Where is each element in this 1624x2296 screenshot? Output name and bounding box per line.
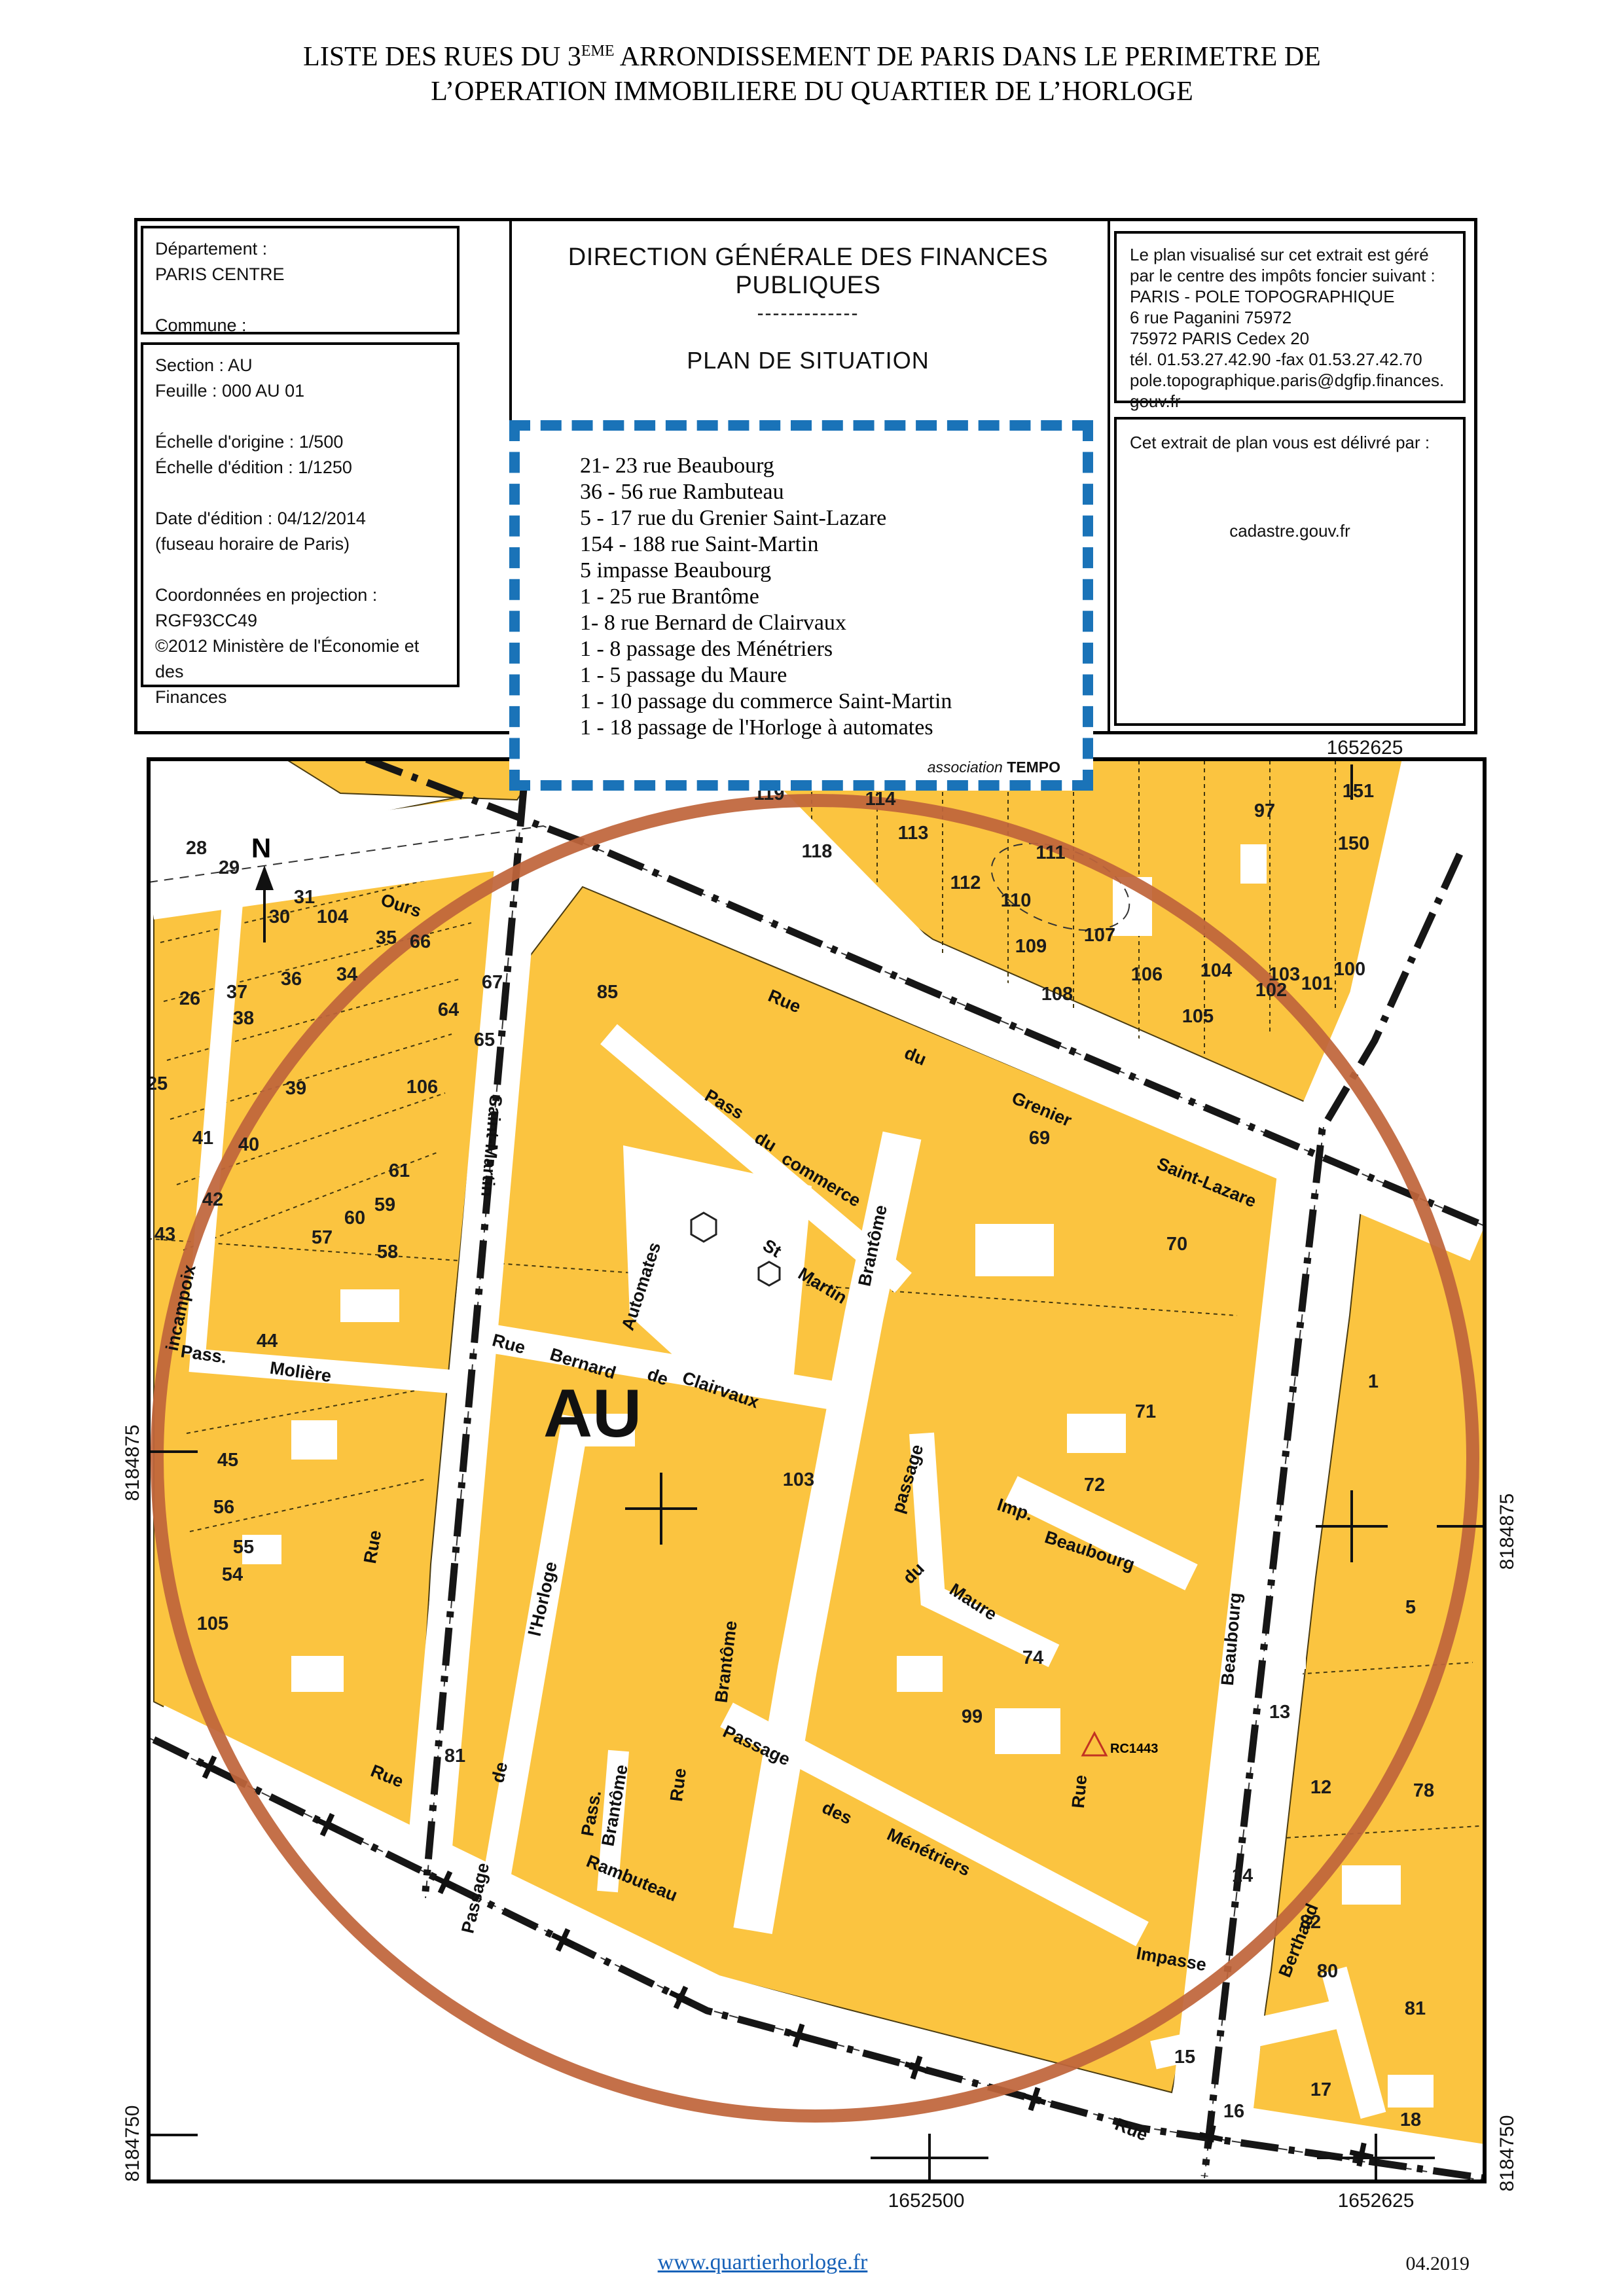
street-item: 154 - 188 rue Saint-Martin <box>580 531 1083 558</box>
sheet-info-box: Section : AU Feuille : 000 AU 01 Échelle… <box>141 342 460 687</box>
parcel-number: 26 <box>179 988 200 1009</box>
grid-coordinate: 8184875 <box>124 1425 143 1501</box>
page-title-line2: L’OPERATION IMMOBILIERE DU QUARTIER DE L… <box>0 75 1624 109</box>
footer-date: 04.2019 <box>1406 2253 1470 2275</box>
parcel-number: 15 <box>1174 2047 1195 2068</box>
grid-coordinate: 1652625 <box>1338 2190 1415 2212</box>
tax-office-name: PARIS - POLE TOPOGRAPHIQUE <box>1130 286 1450 307</box>
parcel-number: 108 <box>1041 984 1073 1005</box>
section-line: Section : AU <box>155 353 445 378</box>
street-list: 21- 23 rue Beaubourg 36 - 56 rue Rambute… <box>520 431 1083 741</box>
parcel-number: 40 <box>238 1134 259 1155</box>
parcel-number: 103 <box>783 1469 814 1490</box>
parcel-number: 64 <box>438 999 459 1020</box>
grid-coordinate: 8184875 <box>1496 1494 1518 1570</box>
grid-coordinate: 1652500 <box>888 2190 965 2212</box>
parcel-number: 105 <box>197 1613 228 1634</box>
parcel-number: 45 <box>217 1450 238 1471</box>
page-title: LISTE DES RUES DU 3EME ARRONDISSEMENT DE… <box>0 34 1624 109</box>
parcel-number: 114 <box>865 789 896 810</box>
header-divider-right <box>1108 218 1110 734</box>
delivery-box: Cet extrait de plan vous est délivré par… <box>1114 417 1466 726</box>
parcel-number: 109 <box>1015 936 1047 957</box>
parcel-number: 54 <box>222 1564 243 1585</box>
parcel-number: 38 <box>233 1008 254 1029</box>
tax-office-box: Le plan visualisé sur cet extrait est gé… <box>1114 231 1466 403</box>
parcel-number: 97 <box>1254 800 1275 821</box>
departement-value: PARIS CENTRE <box>155 262 445 287</box>
feuille-line: Feuille : 000 AU 01 <box>155 378 445 404</box>
parcel-number: 58 <box>377 1242 398 1263</box>
footer: www.quartierhorloge.fr <box>0 2250 1525 2275</box>
parcel-number: 29 <box>219 857 240 878</box>
cadastre-plan-page: { "title": { "line1_pre": "LISTE DES RUE… <box>0 0 1624 2296</box>
parcel-number: 85 <box>597 982 618 1003</box>
parcel-number: 107 <box>1084 925 1115 946</box>
grid-coordinate: 1652625 <box>1327 737 1403 759</box>
date-edition-line: Date d'édition : 04/12/2014 <box>155 506 445 531</box>
projection-line: Coordonnées en projection : RGF93CC49 <box>155 583 445 634</box>
grid-coordinate: 8184750 <box>1496 2115 1518 2192</box>
parcel-number: 16 <box>1223 2101 1244 2122</box>
parcel-number: 34 <box>336 964 357 985</box>
parcel-number: 150 <box>1338 833 1369 854</box>
parcel-number: 106 <box>406 1077 438 1098</box>
street-list-box: 21- 23 rue Beaubourg 36 - 56 rue Rambute… <box>509 420 1093 791</box>
copyright-line2: Finances <box>155 685 445 710</box>
parcel-number: 30 <box>269 906 290 927</box>
parcel-number: 28 <box>186 838 207 859</box>
tax-office-address1: 6 rue Paganini 75972 <box>1130 307 1450 328</box>
parcel-number: 43 <box>154 1224 175 1245</box>
parcel-number: 67 <box>482 972 503 993</box>
parcel-number: 151 <box>1343 781 1374 802</box>
parcel-number: 37 <box>226 982 247 1003</box>
parcel-number: 41 <box>192 1128 213 1149</box>
parcel-number: 12 <box>1310 1777 1331 1798</box>
footer-link[interactable]: www.quartierhorloge.fr <box>658 2250 868 2274</box>
parcel-number: 69 <box>1029 1128 1050 1149</box>
parcel-number: 66 <box>410 931 431 952</box>
echelle-edition-line: Échelle d'édition : 1/1250 <box>155 455 445 480</box>
parcel-number: 31 <box>294 887 315 908</box>
street-item: 5 - 17 rue du Grenier Saint-Lazare <box>580 505 1083 531</box>
parcel-number: 110 <box>1001 890 1032 911</box>
tax-office-line1: Le plan visualisé sur cet extrait est gé… <box>1130 244 1450 265</box>
tax-office-email2: gouv.fr <box>1130 391 1450 412</box>
tax-office-address2: 75972 PARIS Cedex 20 <box>1130 328 1450 349</box>
parcel-number: 57 <box>312 1227 333 1248</box>
parcel-number: 56 <box>213 1497 234 1518</box>
street-item: 21- 23 rue Beaubourg <box>580 453 1083 479</box>
street-item: 1 - 18 passage de l'Horloge à automates <box>580 715 1083 741</box>
parcel-number: 103 <box>1269 964 1300 985</box>
copyright-line: ©2012 Ministère de l'Économie et des <box>155 634 445 685</box>
doc-type-title: PLAN DE SITUATION <box>512 347 1104 374</box>
rc-label: RC1443 <box>1110 1742 1158 1756</box>
parcel-number: 81 <box>1405 1998 1426 2019</box>
parcel-number: 65 <box>474 1030 495 1050</box>
org-divider: ------------- <box>512 302 1104 325</box>
parcel-number: 74 <box>1022 1647 1043 1668</box>
grid-coordinate: 8184750 <box>124 2106 143 2182</box>
title-superscript: EME <box>581 43 615 60</box>
echelle-origine-line: Échelle d'origine : 1/500 <box>155 429 445 455</box>
parcel-number: 1 <box>1368 1371 1379 1392</box>
tax-office-email1: pole.topographique.paris@dgfip.finances. <box>1130 370 1450 391</box>
departement-box: Département : PARIS CENTRE Commune : PAR… <box>141 226 460 334</box>
parcel-number: 59 <box>374 1194 395 1215</box>
parcel-number: 39 <box>285 1078 306 1099</box>
commune-label: Commune : <box>155 313 445 338</box>
street-item: 1 - 8 passage des Ménétriers <box>580 636 1083 662</box>
street-name: Rue <box>666 1767 690 1803</box>
north-letter: N <box>251 833 271 863</box>
street-item: 5 impasse Beaubourg <box>580 558 1083 584</box>
parcel-number: 118 <box>802 841 833 862</box>
parcel-number: 112 <box>950 872 981 893</box>
parcel-number: 60 <box>344 1208 365 1229</box>
tax-office-phone: tél. 01.53.27.42.90 -fax 01.53.27.42.70 <box>1130 349 1450 370</box>
delivery-title: Cet extrait de plan vous est délivré par… <box>1130 430 1450 456</box>
parcel-number: 81 <box>444 1746 465 1767</box>
parcel-number: 100 <box>1334 959 1365 980</box>
parcel-number: 99 <box>962 1706 983 1727</box>
parcel-number: 101 <box>1301 973 1333 994</box>
parcel-number: 106 <box>1131 964 1163 985</box>
street-item: 1- 8 rue Bernard de Clairvaux <box>580 610 1083 636</box>
parcel-number: 55 <box>233 1537 254 1558</box>
parcel-number: 80 <box>1317 1961 1338 1982</box>
association-credit: association TEMPO <box>928 759 1060 776</box>
org-title: DIRECTION GÉNÉRALE DES FINANCES PUBLIQUE… <box>512 243 1104 300</box>
parcel-number: 44 <box>257 1331 278 1352</box>
parcel-number: 113 <box>898 823 929 844</box>
parcel-number: 42 <box>202 1189 223 1210</box>
parcel-number: 13 <box>1269 1702 1290 1723</box>
parcel-number: 71 <box>1135 1401 1156 1422</box>
street-item: 1 - 5 passage du Maure <box>580 662 1083 689</box>
street-item: 1 - 25 rue Brantôme <box>580 584 1083 610</box>
street-item: 36 - 56 rue Rambuteau <box>580 479 1083 505</box>
street-item: 1 - 10 passage du commerce Saint-Martin <box>580 689 1083 715</box>
parcel-number: 61 <box>389 1160 410 1181</box>
parcel-number: 18 <box>1400 2109 1421 2130</box>
cadastral-map: N AU RC1443 2829262531301043566676534363… <box>124 726 1525 2225</box>
parcel-number: 104 <box>317 906 348 927</box>
tax-office-line2: par le centre des impôts foncier suivant… <box>1130 265 1450 286</box>
street-name: Rue <box>1068 1774 1091 1808</box>
parcel-number: 78 <box>1413 1780 1434 1801</box>
parcel-number: 105 <box>1182 1006 1214 1027</box>
parcel-number: 35 <box>376 927 397 948</box>
departement-label: Département : <box>155 236 445 262</box>
parcel-number: 70 <box>1166 1234 1187 1255</box>
parcel-number: 111 <box>1036 842 1065 863</box>
parcel-number: 104 <box>1200 960 1232 981</box>
parcel-number: 17 <box>1310 2079 1331 2100</box>
parcel-number: 72 <box>1084 1475 1105 1496</box>
section-au-label: AU <box>543 1376 641 1452</box>
parcel-number: 5 <box>1405 1597 1416 1618</box>
page-title-line1: LISTE DES RUES DU 3EME ARRONDISSEMENT DE… <box>0 34 1624 75</box>
parcel-number: 14 <box>1232 1865 1253 1886</box>
parcel-number: 36 <box>281 969 302 990</box>
delivery-provider: cadastre.gouv.fr <box>1130 518 1450 544</box>
fuseau-line: (fuseau horaire de Paris) <box>155 531 445 557</box>
